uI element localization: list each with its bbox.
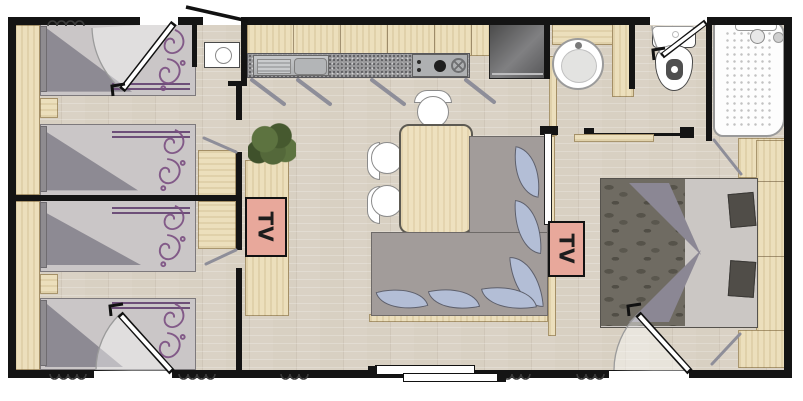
wall-bathroom [544, 17, 550, 79]
water-heater-dial [215, 47, 232, 64]
wall-bedroom-divider [8, 195, 242, 201]
headboard [40, 202, 47, 268]
pillow [728, 260, 756, 298]
door-opening [140, 17, 178, 25]
pillow [728, 192, 757, 228]
sliding-window-panel [403, 373, 505, 382]
partition-wood [548, 276, 556, 336]
kitchen-upper-cabinets [247, 24, 492, 56]
toilet [646, 24, 704, 94]
wall-corridor [236, 86, 242, 120]
single-bed-3 [40, 200, 196, 272]
headboard [40, 300, 47, 366]
headboard [40, 126, 47, 192]
shower [713, 19, 785, 137]
ornament-flourish-icon [153, 26, 193, 96]
wall-closet [192, 17, 197, 67]
window-stop [497, 373, 506, 382]
window-stop [368, 366, 377, 375]
wall-closet [228, 81, 247, 86]
tv-screen: TV [548, 221, 585, 277]
wardrobe-left-top [14, 25, 40, 195]
sink-basin [294, 58, 327, 75]
wall-right [784, 17, 792, 378]
storage-bottom-right [738, 330, 785, 368]
plant-icon [248, 120, 296, 168]
ornament-flourish-icon [153, 126, 193, 196]
wall-shower [706, 17, 712, 141]
shower-tray [724, 30, 774, 126]
wall-corridor [236, 268, 242, 370]
tv-label: TV [555, 233, 579, 264]
tv-label: TV [254, 211, 278, 242]
bedroom-desk [198, 150, 236, 196]
water-heater [204, 42, 240, 68]
nightstand [40, 98, 58, 118]
kitchen-sink [253, 55, 329, 76]
burner [451, 58, 466, 73]
double-bed [600, 178, 758, 328]
cooktop [412, 54, 468, 77]
wall-wc [629, 17, 635, 89]
wardrobe-left-bottom [14, 201, 40, 370]
dining-table [399, 124, 473, 234]
fridge [489, 23, 546, 79]
ornament-flourish-icon [153, 300, 193, 370]
single-bed-2 [40, 124, 196, 196]
shower-drain [773, 32, 784, 43]
wall-closet [241, 17, 247, 86]
wall-corridor [236, 152, 242, 250]
door-opening [203, 17, 241, 25]
bedroom-desk [198, 201, 236, 249]
burner [434, 60, 446, 72]
single-bed-1 [40, 24, 196, 96]
tv-screen: TV [245, 197, 287, 257]
sliding-partition [544, 133, 552, 225]
door-opening [94, 371, 172, 378]
shower-head-icon [750, 29, 765, 44]
nightstand [40, 274, 58, 294]
sliding-door-leaf [574, 134, 654, 142]
faucet [575, 42, 582, 49]
toilet-bowl [655, 45, 693, 91]
door-opening [609, 371, 689, 378]
single-bed-4 [40, 298, 196, 370]
ornament-flourish-icon [153, 202, 193, 272]
door-opening [650, 17, 707, 25]
sink-drainer [257, 59, 291, 74]
headboard [40, 26, 47, 92]
mobile-home-floor-plan: TV TV [0, 0, 803, 401]
washbasin [552, 38, 604, 90]
